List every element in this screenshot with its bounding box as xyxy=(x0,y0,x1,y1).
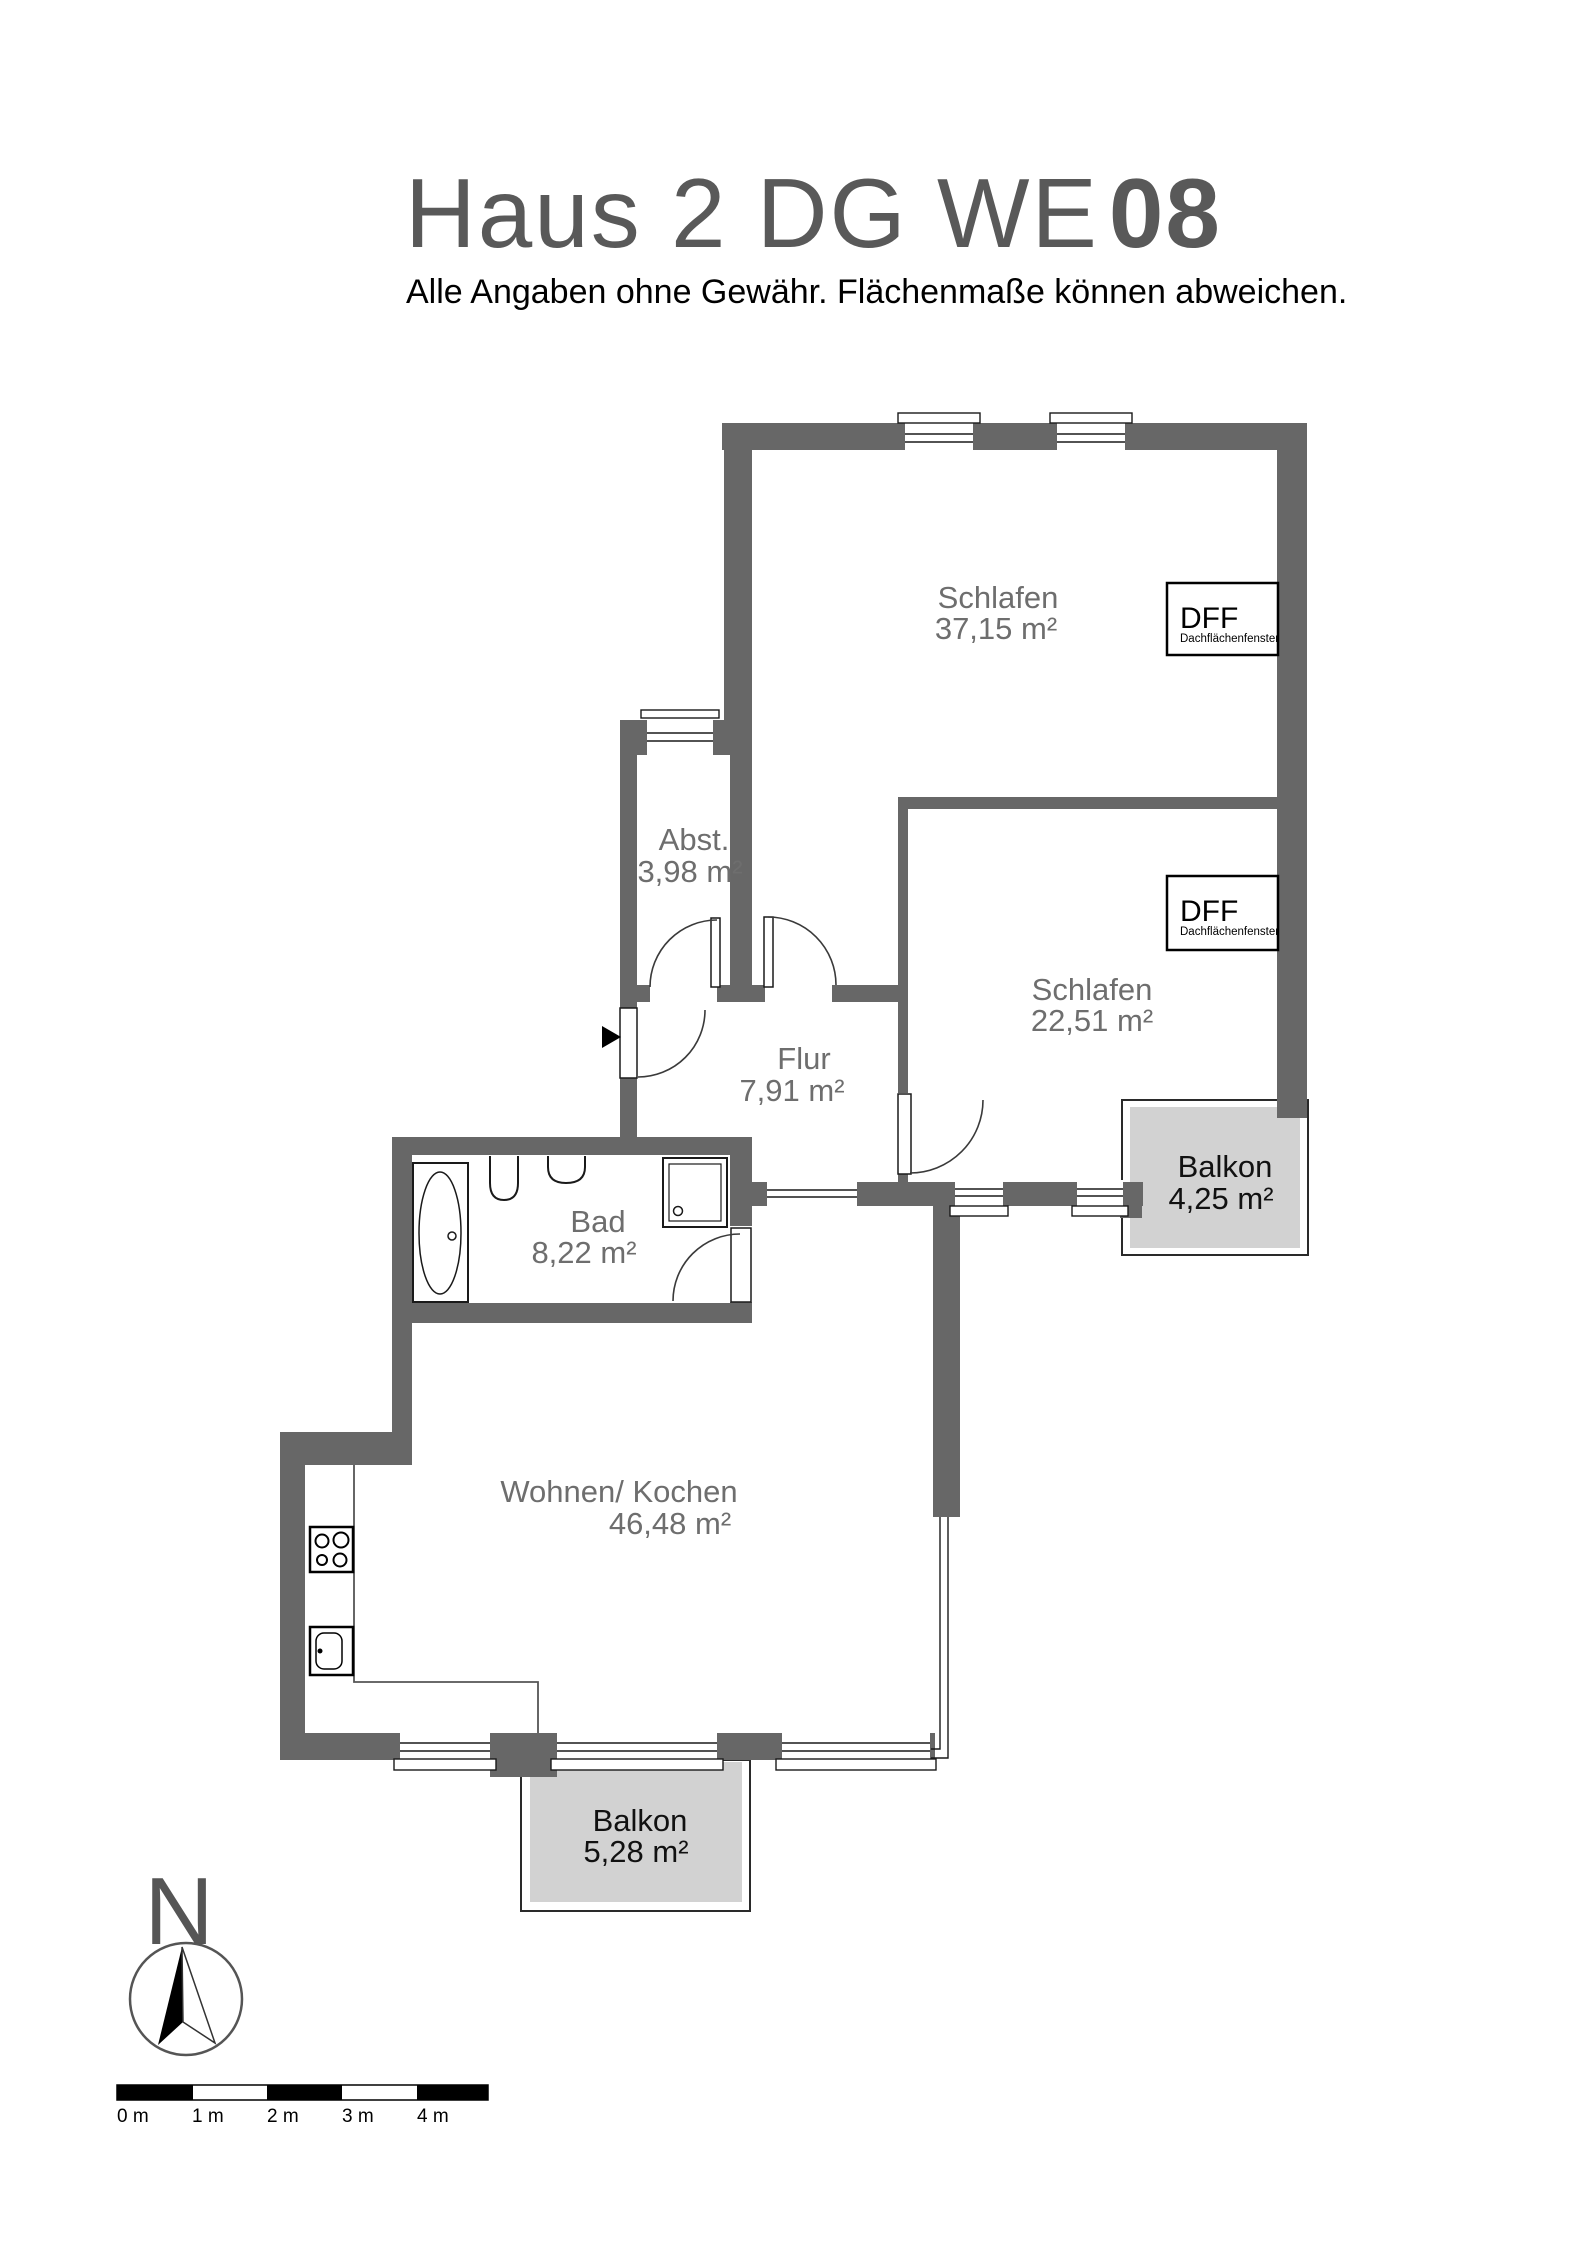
door-leaf-abst xyxy=(711,918,720,987)
label-bad-area: 8,22 m² xyxy=(531,1235,636,1270)
wall-bad-west xyxy=(392,1137,412,1440)
door-leaf-schlafen1 xyxy=(764,917,773,987)
window-north-2 xyxy=(1050,413,1132,452)
skylight-box-2: DFF Dachflächenfenster xyxy=(1167,876,1279,950)
label-balkon-east-name: Balkon xyxy=(1178,1149,1273,1184)
wall-west-upper xyxy=(724,423,752,755)
washbasin-icon xyxy=(490,1156,518,1200)
wall-bad-south xyxy=(392,1303,750,1323)
label-abst-name: Abst. xyxy=(659,822,730,857)
window-wohnen-south-1 xyxy=(394,1731,496,1770)
window-north-1 xyxy=(898,413,980,452)
room-labels: Schlafen 37,15 m² Schlafen 22,51 m² Abst… xyxy=(500,580,1153,1541)
door-swing-schlafen1 xyxy=(768,917,836,985)
scale-bar-labels: 0 m 1 m 2 m 3 m 4 m xyxy=(117,2106,449,2127)
door-leaf-entrance xyxy=(620,1008,637,1078)
window-wohnen-south-2 xyxy=(551,1731,723,1770)
skylight-1-abbr: DFF xyxy=(1180,602,1238,635)
label-wohnen-name: Wohnen/ Kochen xyxy=(500,1474,737,1509)
label-schlafen1-area: 37,15 m² xyxy=(935,611,1057,646)
label-flur-name: Flur xyxy=(777,1041,830,1076)
scale-label-0: 0 m xyxy=(117,2106,149,2127)
scale-label-1: 1 m xyxy=(192,2106,224,2127)
floorplan-page: Haus 2 DG WE08 Alle Angaben ohne Gewähr.… xyxy=(0,0,1586,2246)
window-flur-south-2 xyxy=(1072,1180,1128,1216)
page-title-main: Haus 2 DG WE xyxy=(405,158,1099,268)
skylight-1-full: Dachflächenfenster xyxy=(1180,633,1279,645)
window-flur-south-1 xyxy=(950,1180,1008,1216)
scale-bar: 0 m 1 m 2 m 3 m 4 m xyxy=(117,2085,488,2127)
window-abst xyxy=(641,710,719,757)
compass-north-label: N xyxy=(144,1858,213,1965)
skylight-boxes: DFF Dachflächenfenster DFF Dachflächenfe… xyxy=(1167,583,1279,950)
door-swings xyxy=(638,917,983,1301)
page-subtitle: Alle Angaben ohne Gewähr. Flächenmaße kö… xyxy=(406,273,1347,311)
shower-icon xyxy=(663,1158,727,1227)
label-flur-area: 7,91 m² xyxy=(739,1073,844,1108)
door-swing-abst xyxy=(650,920,717,987)
scale-label-3: 3 m xyxy=(342,2106,374,2127)
skylight-2-full: Dachflächenfenster xyxy=(1180,926,1279,938)
scale-bar-segments xyxy=(117,2085,488,2100)
wall-north xyxy=(722,423,1307,450)
scale-label-4: 4 m xyxy=(417,2106,449,2127)
door-swing-entrance xyxy=(638,1010,705,1077)
wall-wohnen-east xyxy=(933,1195,960,1525)
page-title: Haus 2 DG WE08 xyxy=(405,158,1222,268)
wall-schlafen-divider xyxy=(898,797,1279,809)
page-title-number: 08 xyxy=(1109,158,1222,268)
compass: N xyxy=(130,1858,242,2055)
label-wohnen-area: 46,48 m² xyxy=(609,1506,731,1541)
kitchen-sink-icon xyxy=(310,1627,353,1675)
window-wohnen-south-3 xyxy=(776,1731,936,1770)
doors xyxy=(602,917,983,1302)
label-schlafen2-area: 22,51 m² xyxy=(1031,1003,1153,1038)
scale-label-2: 2 m xyxy=(267,2106,299,2127)
label-balkon-south-name: Balkon xyxy=(593,1803,688,1838)
wall-bad-north xyxy=(392,1137,750,1155)
label-schlafen2-name: Schlafen xyxy=(1032,972,1153,1007)
bathtub-icon xyxy=(413,1163,468,1302)
label-schlafen1-name: Schlafen xyxy=(938,580,1059,615)
window-wohnen-east-corner xyxy=(931,1517,960,1758)
label-abst-area: 3,98 m² xyxy=(637,854,742,889)
washbasin-2-icon xyxy=(548,1156,585,1183)
stove-icon xyxy=(310,1527,353,1572)
skylight-2-abbr: DFF xyxy=(1180,895,1238,928)
door-leaf-schlafen2 xyxy=(898,1094,911,1174)
label-bad-name: Bad xyxy=(570,1204,625,1239)
passage-flur-wohnen xyxy=(767,1180,857,1208)
wall-east xyxy=(1277,423,1307,1118)
wall-wohnen-west xyxy=(280,1432,305,1760)
door-leaves xyxy=(620,917,911,1302)
door-leaf-bad xyxy=(731,1228,751,1302)
label-balkon-east-area: 4,25 m² xyxy=(1168,1181,1273,1216)
skylight-box-1: DFF Dachflächenfenster xyxy=(1167,583,1279,655)
label-balkon-south-area: 5,28 m² xyxy=(583,1834,688,1869)
door-swing-schlafen2 xyxy=(910,1100,983,1173)
header: Haus 2 DG WE08 Alle Angaben ohne Gewähr.… xyxy=(405,158,1347,311)
wall-pillar-balcony-south xyxy=(490,1733,557,1777)
